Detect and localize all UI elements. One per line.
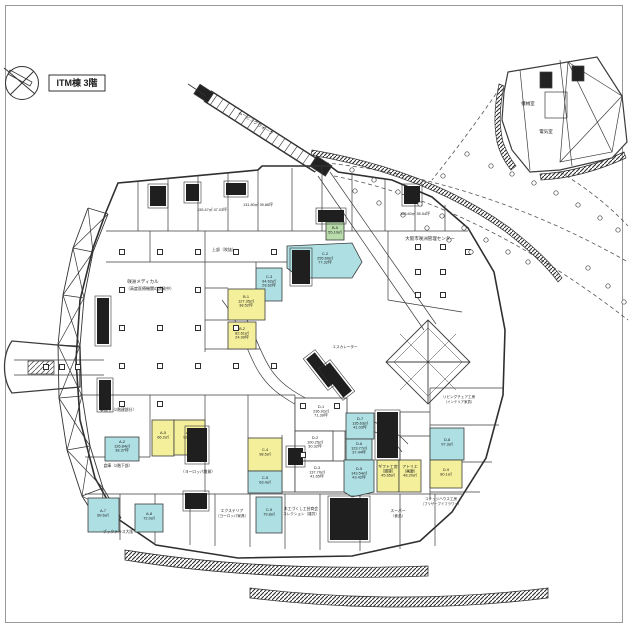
medical-label-2: （高度医療機関の誘致中） — [126, 285, 174, 291]
core-shaft — [377, 412, 398, 458]
room-a8: A-872.0㎡ — [135, 504, 163, 532]
column-marker — [120, 364, 125, 369]
room-d6: D-6123.77㎡37.44坪 — [346, 439, 372, 460]
column-marker — [441, 270, 446, 275]
canopy-column-dot — [526, 260, 530, 264]
core-shaft — [150, 186, 166, 206]
medical-label-1: 咲洲メディカル — [127, 278, 159, 285]
band-area-1: 155.47㎡ 47.03坪 — [197, 207, 227, 212]
core-shaft — [226, 183, 246, 195]
room-d7: D-7135.63㎡41.03坪 — [346, 413, 374, 439]
column-marker — [416, 270, 421, 275]
interior-studio-1: リビングチェア工房 — [443, 394, 476, 399]
core-shaft — [318, 210, 344, 222]
column-marker — [158, 402, 163, 407]
column-marker — [196, 288, 201, 293]
core-shaft — [97, 298, 109, 344]
canopy-column-dot — [484, 238, 488, 242]
core-shaft — [99, 380, 111, 410]
canopy-column-dot — [353, 189, 357, 193]
canopy-column-dot — [469, 250, 473, 254]
room-d8: D-897.3㎡ — [430, 428, 464, 460]
room-d1: D-1236.92㎡71.39坪 — [295, 398, 347, 431]
room-a7: A-789.6㎡ — [88, 498, 119, 532]
room-c5: C-563.4㎡ — [248, 471, 282, 493]
column-marker — [196, 250, 201, 255]
office-label: 事務所（2階建部分） — [100, 407, 136, 412]
room-b5: B-555.10㎡ — [326, 222, 344, 240]
canopy-column-dot — [489, 164, 493, 168]
shop-craft-2: コレクション（雑貨） — [283, 511, 319, 516]
shop-super-1: スーパー — [390, 508, 405, 513]
column-marker — [76, 365, 81, 370]
room-c9: C-979.8㎡ — [256, 497, 282, 533]
core-shaft — [186, 184, 199, 201]
column-marker — [441, 293, 446, 298]
room-d9: D-980.1㎡ — [430, 460, 462, 488]
canopy-column-dot — [372, 178, 376, 182]
room-b1: B-1127.35㎡38.52坪 — [228, 289, 265, 320]
canopy-column-dot — [622, 300, 626, 304]
room-d3: D-3137.70㎡41.65坪 — [295, 461, 347, 492]
canopy-column-dot — [396, 190, 400, 194]
floor-plan-page: ITM棟 3階 — [0, 0, 630, 630]
moving-walkway — [188, 84, 332, 176]
column-marker — [120, 250, 125, 255]
room-a5: A-566.2㎡ — [152, 420, 174, 456]
column-marker — [272, 364, 277, 369]
column-marker — [234, 326, 239, 331]
page-title: ITM棟 3階 — [56, 77, 97, 88]
room-a2: A-2126.84㎡38.37坪 — [105, 437, 139, 461]
canopy-column-dot — [418, 202, 422, 206]
shop-cottage-2: （プリザーブドフラワー） — [421, 501, 461, 506]
room-c4: C-498.5㎡ — [248, 438, 282, 471]
room-label: アトリエ（画廊）48.20㎡ — [402, 464, 418, 478]
column-marker — [234, 364, 239, 369]
book-label: ブックテラス大阪 — [103, 529, 134, 534]
wing-building — [502, 57, 627, 172]
room-d5: D-5143.54㎡43.42坪 — [344, 460, 374, 497]
column-marker — [272, 250, 277, 255]
canopy-column-dot — [532, 181, 536, 185]
canopy-column-dot — [510, 172, 514, 176]
column-marker — [416, 245, 421, 250]
canopy-column-dot — [377, 201, 381, 205]
escalator-label: エスカレーター — [332, 344, 358, 349]
column-marker — [301, 404, 306, 409]
column-marker — [60, 365, 65, 370]
column-marker — [196, 326, 201, 331]
core-shaft — [404, 186, 420, 204]
column-marker — [441, 245, 446, 250]
core-shaft — [292, 250, 310, 284]
wing-room-1: 機械室 — [521, 100, 535, 107]
osaka-center-label: 大阪市咲洲管理センター — [405, 235, 455, 242]
void-label: 上部（吹抜） — [212, 246, 236, 252]
canopy-column-dot — [425, 226, 429, 230]
shop-cottage-1: コテッジハウス工房 — [425, 496, 458, 501]
core-shaft — [330, 498, 368, 540]
canopy-column-dot — [554, 191, 558, 195]
wing-room-2: 電気室 — [539, 128, 553, 135]
column-marker — [301, 453, 306, 458]
band-area-3: 183.60㎡ 55.54坪 — [400, 211, 430, 216]
shop-eur-goods: （ヨーロッパ雑貨） — [181, 469, 215, 474]
storage-label: 倉庫（2階下部） — [104, 463, 133, 468]
canopy-column-dot — [586, 266, 590, 270]
column-marker — [120, 326, 125, 331]
column-marker — [120, 402, 125, 407]
shop-exterior-1: エクステリア — [221, 508, 244, 513]
column-marker — [44, 365, 49, 370]
column-marker — [158, 364, 163, 369]
interior-studio-2: （インテリア家具） — [444, 399, 475, 404]
canopy-column-dot — [350, 168, 354, 172]
canopy-column-dot — [598, 216, 602, 220]
column-marker — [158, 250, 163, 255]
room-d4a: ギフト工房（雑貨）45.65㎡ — [377, 460, 399, 492]
bottom-hatch-bands — [125, 550, 548, 607]
room-d4b: アトリエ（画廊）48.20㎡ — [399, 460, 421, 492]
column-marker — [335, 404, 340, 409]
canopy-column-dot — [462, 226, 466, 230]
shop-craft-1: 木工づくし工芸商会 — [284, 506, 318, 511]
column-marker — [158, 326, 163, 331]
canopy-column-dot — [441, 174, 445, 178]
canopy-column-dot — [616, 228, 620, 232]
title-box: ITM棟 3階 — [49, 75, 105, 91]
shop-super-2: （食品） — [391, 513, 405, 518]
canopy-column-dot — [440, 214, 444, 218]
canopy-column-dot — [606, 284, 610, 288]
column-marker — [196, 364, 201, 369]
canopy-column-dot — [465, 152, 469, 156]
core-shaft — [185, 493, 207, 509]
core-shaft — [187, 428, 207, 462]
shop-exterior-2: （ヨーロッパ家具） — [216, 513, 248, 518]
band-area-2: 131.80㎡ 39.86坪 — [243, 202, 273, 207]
column-marker — [120, 288, 125, 293]
canopy-column-dot — [506, 250, 510, 254]
north-compass-icon — [4, 67, 39, 100]
room-b2: B-282.61㎡24.99坪 — [228, 322, 256, 349]
column-marker — [416, 293, 421, 298]
canopy-column-dot — [576, 203, 580, 207]
floor-plan-drawing: ITM棟 3階 — [0, 0, 630, 630]
